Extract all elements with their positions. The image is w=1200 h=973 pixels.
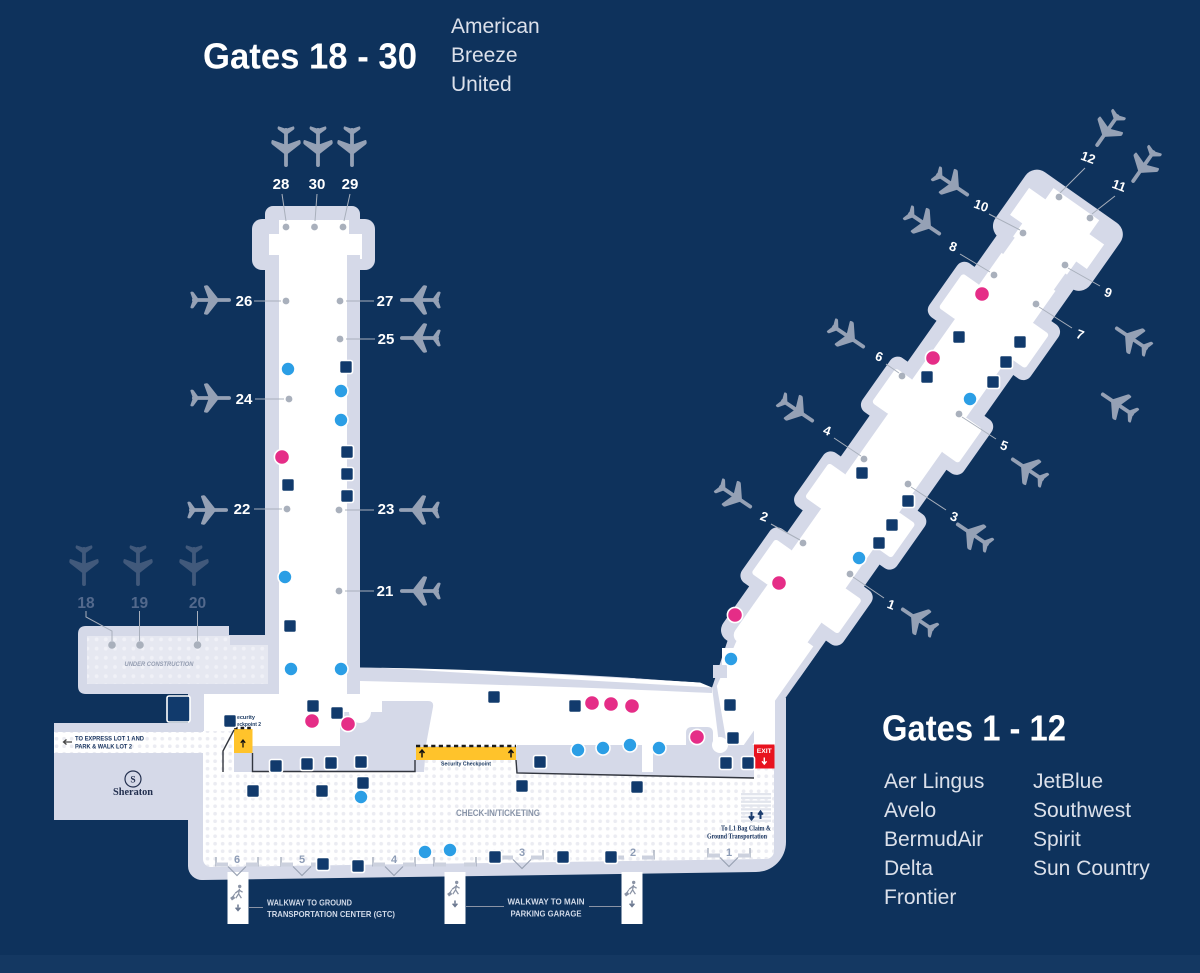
svg-text:WALKWAY TO GROUND: WALKWAY TO GROUND — [267, 898, 352, 908]
svg-text:6: 6 — [234, 854, 240, 866]
svg-text:American: American — [451, 15, 540, 38]
svg-text:BermudAir: BermudAir — [884, 828, 983, 851]
svg-text:EXIT: EXIT — [757, 748, 772, 755]
svg-text:To L1 Bag Claim &: To L1 Bag Claim & — [721, 826, 771, 833]
svg-text:3: 3 — [519, 847, 525, 859]
svg-text:20: 20 — [189, 595, 206, 612]
svg-text:23: 23 — [378, 501, 395, 518]
svg-text:United: United — [451, 73, 512, 96]
svg-text:S: S — [130, 776, 135, 786]
svg-text:Ground Transportation: Ground Transportation — [707, 834, 767, 841]
svg-text:Breeze: Breeze — [451, 44, 518, 67]
svg-text:Aer Lingus: Aer Lingus — [884, 770, 984, 793]
svg-text:Gates 18 - 30: Gates 18 - 30 — [203, 36, 417, 77]
svg-text:TRANSPORTATION CENTER (GTC): TRANSPORTATION CENTER (GTC) — [267, 909, 395, 919]
svg-text:TO EXPRESS LOT 1 AND: TO EXPRESS LOT 1 AND — [75, 736, 144, 743]
svg-text:26: 26 — [236, 293, 253, 310]
svg-text:Spirit: Spirit — [1033, 828, 1081, 851]
svg-text:18: 18 — [77, 595, 95, 612]
svg-text:22: 22 — [234, 501, 251, 518]
svg-text:2: 2 — [630, 847, 636, 859]
svg-text:28: 28 — [273, 176, 290, 193]
svg-text:JetBlue: JetBlue — [1033, 770, 1103, 793]
svg-text:PARKING GARAGE: PARKING GARAGE — [511, 909, 582, 919]
svg-text:Southwest: Southwest — [1033, 799, 1131, 822]
svg-text:1: 1 — [726, 847, 732, 859]
svg-text:Sheraton: Sheraton — [113, 787, 153, 798]
svg-text:30: 30 — [309, 176, 326, 193]
svg-text:Avelo: Avelo — [884, 799, 936, 822]
svg-text:Frontier: Frontier — [884, 886, 956, 909]
svg-text:19: 19 — [131, 595, 149, 612]
svg-text:WALKWAY TO MAIN: WALKWAY TO MAIN — [508, 897, 585, 907]
svg-text:25: 25 — [378, 331, 395, 348]
svg-text:PARK & WALK LOT 2: PARK & WALK LOT 2 — [75, 744, 132, 751]
svg-text:Delta: Delta — [884, 857, 933, 880]
svg-text:UNDER CONSTRUCTION: UNDER CONSTRUCTION — [125, 661, 194, 668]
svg-text:Security Checkpoint: Security Checkpoint — [441, 762, 491, 768]
svg-text:27: 27 — [377, 293, 394, 310]
svg-text:Sun Country: Sun Country — [1033, 857, 1150, 880]
svg-text:Gates 1 - 12: Gates 1 - 12 — [882, 708, 1066, 749]
svg-text:CHECK-IN/TICKETING: CHECK-IN/TICKETING — [456, 808, 540, 818]
svg-text:4: 4 — [391, 854, 398, 866]
svg-text:29: 29 — [342, 176, 359, 193]
svg-text:21: 21 — [377, 583, 394, 600]
svg-text:5: 5 — [299, 854, 305, 866]
svg-text:24: 24 — [236, 391, 253, 408]
